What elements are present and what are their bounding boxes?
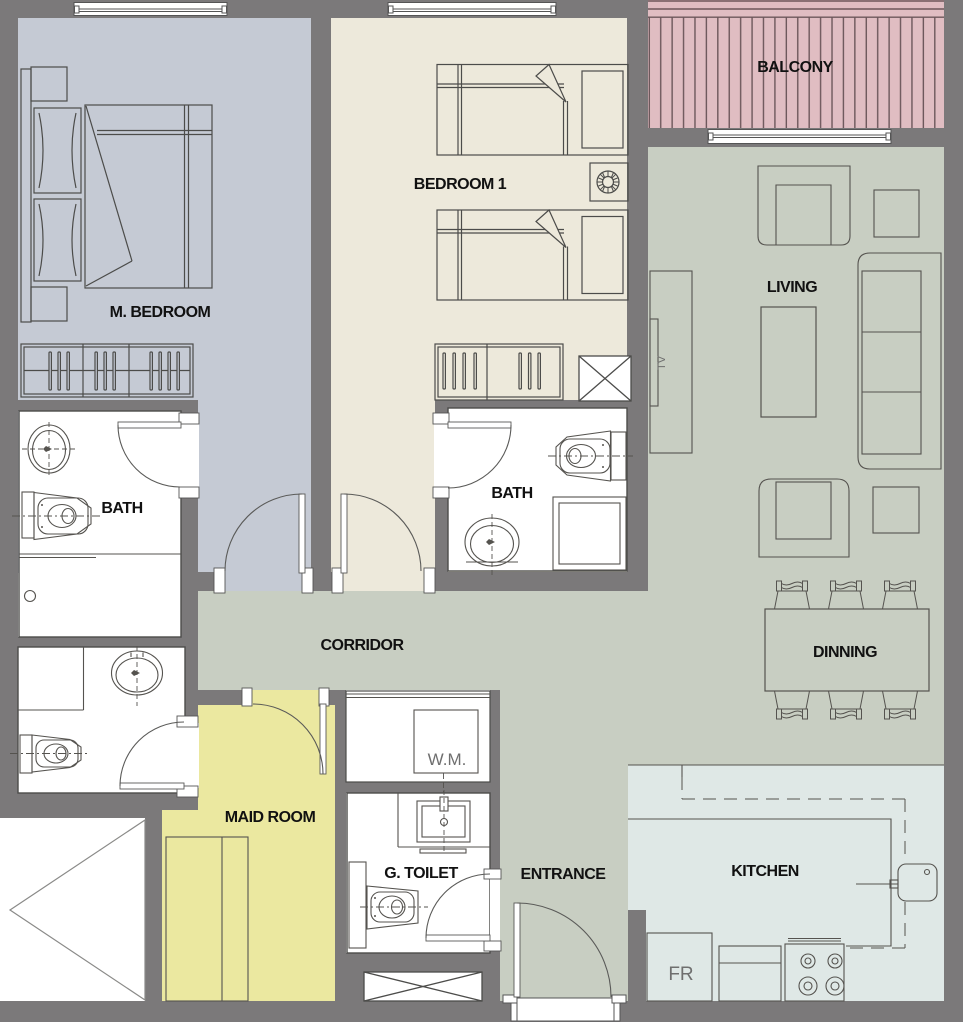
svg-text:G. TOILET: G. TOILET bbox=[384, 865, 458, 882]
svg-text:CORRIDOR: CORRIDOR bbox=[320, 637, 404, 654]
svg-text:FR: FR bbox=[668, 964, 693, 985]
svg-text:ENTRANCE: ENTRANCE bbox=[521, 866, 607, 883]
svg-text:KITCHEN: KITCHEN bbox=[731, 863, 799, 880]
svg-text:DINNING: DINNING bbox=[813, 644, 877, 661]
svg-text:M. BEDROOM: M. BEDROOM bbox=[110, 304, 211, 321]
svg-text:BATH: BATH bbox=[101, 500, 142, 517]
svg-text:W.M.: W.M. bbox=[428, 750, 467, 769]
svg-text:BALCONY: BALCONY bbox=[757, 59, 833, 76]
svg-text:BEDROOM 1: BEDROOM 1 bbox=[414, 176, 507, 193]
svg-text:BATH: BATH bbox=[491, 485, 532, 502]
svg-text:LIVING: LIVING bbox=[767, 279, 817, 296]
svg-text:MAID ROOM: MAID ROOM bbox=[225, 809, 316, 826]
svg-text:TV: TV bbox=[656, 355, 668, 370]
